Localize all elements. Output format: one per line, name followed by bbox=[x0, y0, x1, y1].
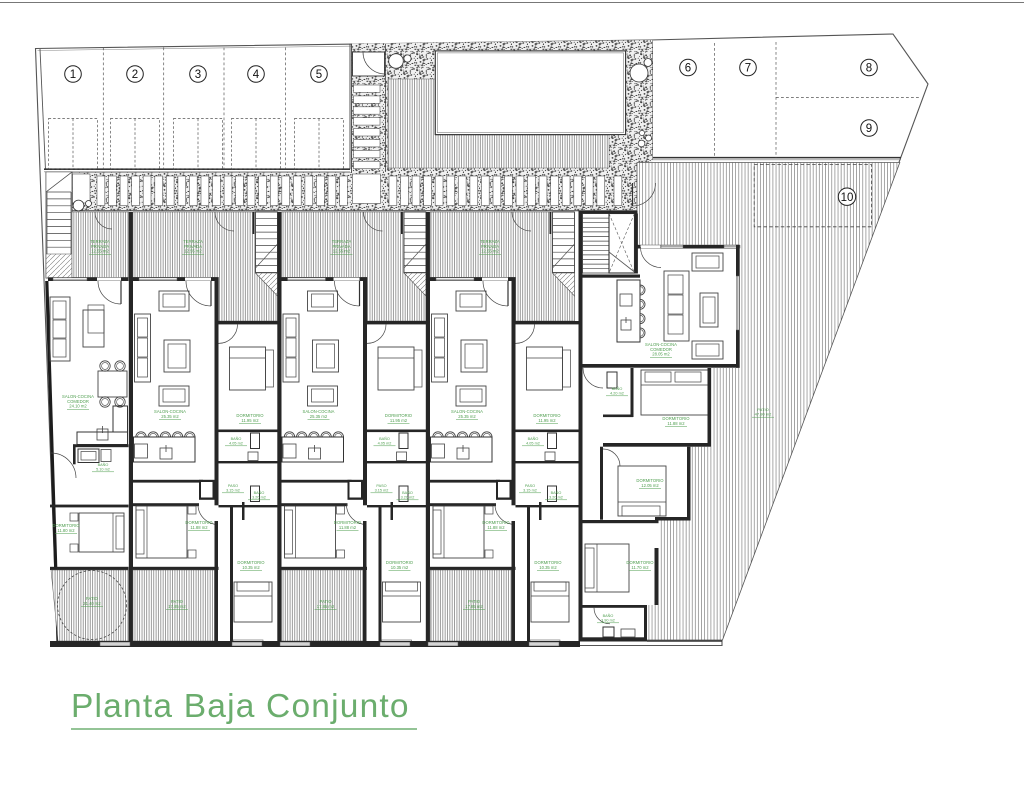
svg-text:BAÑO: BAÑO bbox=[612, 386, 623, 391]
svg-text:3.20 m2: 3.20 m2 bbox=[252, 495, 266, 499]
svg-text:PASO: PASO bbox=[376, 484, 386, 488]
svg-text:9: 9 bbox=[866, 123, 872, 135]
svg-text:3.15 m2: 3.15 m2 bbox=[375, 488, 389, 492]
svg-text:12.55 m2: 12.55 m2 bbox=[91, 249, 109, 254]
svg-text:10.35 m2: 10.35 m2 bbox=[242, 565, 260, 570]
svg-text:11.95 m2: 11.95 m2 bbox=[390, 418, 408, 423]
svg-text:10.35 m2: 10.35 m2 bbox=[391, 565, 409, 570]
svg-text:11.88 m2: 11.88 m2 bbox=[487, 525, 505, 530]
svg-text:21.40 m2: 21.40 m2 bbox=[83, 601, 101, 606]
svg-text:BAÑO: BAÑO bbox=[603, 613, 614, 618]
svg-text:10.35 m2: 10.35 m2 bbox=[539, 565, 557, 570]
svg-text:17.85 m2: 17.85 m2 bbox=[317, 604, 335, 609]
svg-text:47.80 m2: 47.80 m2 bbox=[755, 412, 772, 417]
svg-text:6: 6 bbox=[685, 63, 691, 75]
svg-text:5.10 m2: 5.10 m2 bbox=[96, 467, 110, 471]
svg-text:11.88 m2: 11.88 m2 bbox=[190, 525, 208, 530]
svg-text:1: 1 bbox=[70, 69, 76, 81]
svg-text:11.95 m2: 11.95 m2 bbox=[241, 418, 259, 423]
svg-text:BAÑO: BAÑO bbox=[528, 436, 539, 441]
svg-text:3.15 m2: 3.15 m2 bbox=[523, 488, 537, 492]
svg-text:12.55 m2: 12.55 m2 bbox=[333, 249, 351, 254]
svg-text:17.85 m2: 17.85 m2 bbox=[168, 604, 186, 609]
svg-text:4.05 m2: 4.05 m2 bbox=[229, 441, 243, 445]
svg-text:3.20 m2: 3.20 m2 bbox=[549, 495, 563, 499]
svg-text:12.05 m2: 12.05 m2 bbox=[641, 483, 659, 488]
svg-text:7: 7 bbox=[745, 63, 751, 75]
svg-text:2: 2 bbox=[132, 69, 138, 81]
svg-text:4.05 m2: 4.05 m2 bbox=[526, 441, 540, 445]
svg-text:4.20 m2: 4.20 m2 bbox=[610, 391, 624, 395]
svg-text:12.55 m2: 12.55 m2 bbox=[184, 249, 202, 254]
svg-text:11.70 m2: 11.70 m2 bbox=[631, 565, 649, 570]
svg-text:28.05 m2: 28.05 m2 bbox=[652, 352, 670, 357]
svg-text:10: 10 bbox=[841, 192, 854, 204]
svg-text:25.35 m2: 25.35 m2 bbox=[310, 414, 328, 419]
svg-text:24.10 m2: 24.10 m2 bbox=[69, 404, 87, 409]
svg-text:BAÑO: BAÑO bbox=[98, 462, 109, 467]
svg-text:25.35 m2: 25.35 m2 bbox=[458, 414, 476, 419]
svg-text:17.85 m2: 17.85 m2 bbox=[465, 604, 483, 609]
svg-text:3: 3 bbox=[195, 69, 201, 81]
svg-text:3.20 m2: 3.20 m2 bbox=[401, 495, 415, 499]
svg-text:3.90 m2: 3.90 m2 bbox=[601, 618, 615, 622]
svg-text:11.80 m2: 11.80 m2 bbox=[57, 528, 75, 533]
svg-text:11.88 m2: 11.88 m2 bbox=[339, 525, 357, 530]
svg-text:PASO: PASO bbox=[525, 484, 535, 488]
svg-text:5: 5 bbox=[316, 69, 322, 81]
svg-text:4.05 m2: 4.05 m2 bbox=[378, 441, 392, 445]
svg-text:11.95 m2: 11.95 m2 bbox=[538, 418, 556, 423]
svg-text:BAÑO: BAÑO bbox=[379, 436, 390, 441]
svg-text:4: 4 bbox=[253, 69, 260, 81]
svg-text:8: 8 bbox=[866, 63, 872, 75]
svg-text:3.15 m2: 3.15 m2 bbox=[226, 488, 240, 492]
svg-text:BAÑO: BAÑO bbox=[231, 436, 242, 441]
svg-text:25.35 m2: 25.35 m2 bbox=[161, 414, 179, 419]
svg-text:12.55 m2: 12.55 m2 bbox=[481, 249, 499, 254]
svg-text:Planta Baja Conjunto: Planta Baja Conjunto bbox=[71, 688, 410, 725]
svg-text:PASO: PASO bbox=[228, 484, 238, 488]
svg-text:BAÑO: BAÑO bbox=[551, 490, 562, 495]
svg-text:11.88 m2: 11.88 m2 bbox=[667, 421, 685, 426]
svg-text:BAÑO: BAÑO bbox=[402, 490, 413, 495]
svg-text:BAÑO: BAÑO bbox=[254, 490, 265, 495]
